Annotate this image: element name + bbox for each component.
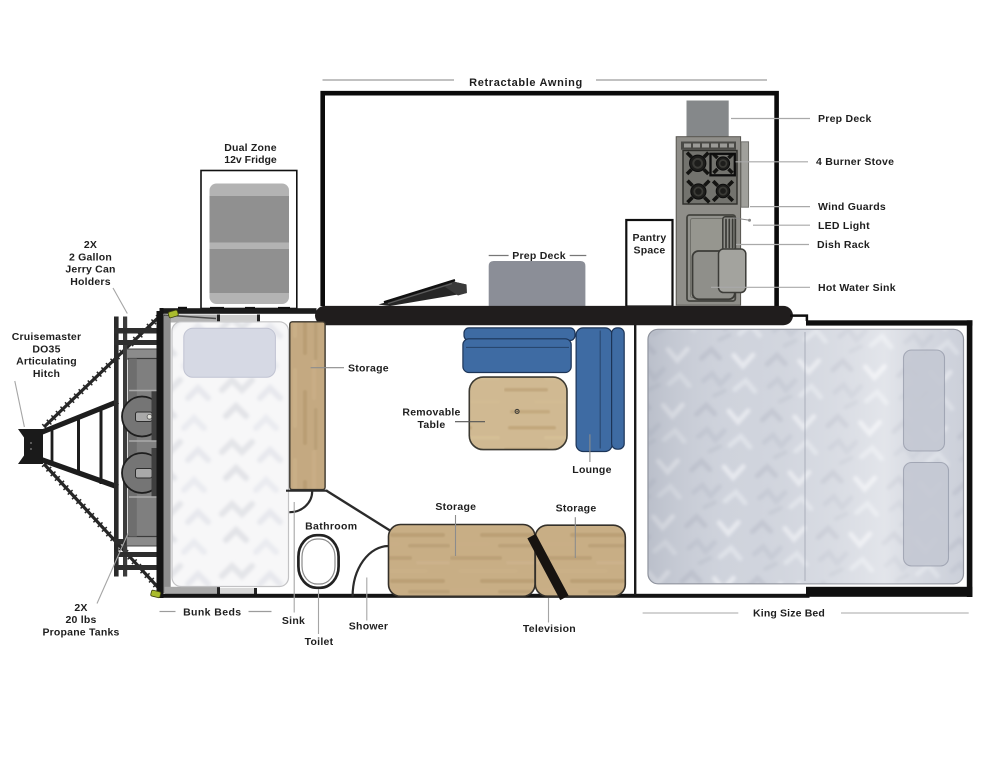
svg-text:Bathroom: Bathroom: [305, 521, 357, 533]
svg-text:Prep Deck: Prep Deck: [512, 250, 566, 262]
svg-text:Storage: Storage: [556, 503, 597, 515]
svg-text:Propane Tanks: Propane Tanks: [42, 626, 119, 638]
svg-text:Jerry Can: Jerry Can: [65, 264, 115, 276]
svg-text:Retractable Awning: Retractable Awning: [469, 77, 583, 89]
svg-text:DO35: DO35: [32, 343, 60, 355]
svg-text:Space: Space: [634, 245, 666, 257]
svg-text:Removable: Removable: [402, 407, 460, 419]
svg-text:Articulating: Articulating: [16, 356, 77, 368]
svg-text:Pantry: Pantry: [633, 232, 667, 244]
svg-text:Hot Water Sink: Hot Water Sink: [818, 282, 896, 294]
svg-text:Holders: Holders: [70, 276, 111, 288]
svg-text:2X: 2X: [84, 239, 97, 251]
svg-text:Storage: Storage: [435, 501, 476, 513]
svg-text:King Size Bed: King Size Bed: [753, 608, 825, 620]
svg-text:Sink: Sink: [282, 615, 305, 627]
svg-text:Wind Guards: Wind Guards: [818, 201, 886, 213]
svg-text:12v Fridge: 12v Fridge: [224, 154, 277, 166]
svg-text:4 Burner Stove: 4 Burner Stove: [816, 156, 894, 168]
svg-text:Prep Deck: Prep Deck: [818, 113, 872, 125]
svg-text:2X: 2X: [74, 602, 87, 614]
svg-text:2 Gallon: 2 Gallon: [69, 251, 112, 263]
svg-text:Table: Table: [418, 419, 446, 431]
svg-text:Dish Rack: Dish Rack: [817, 239, 870, 251]
svg-text:Hitch: Hitch: [33, 368, 60, 380]
svg-text:20 lbs: 20 lbs: [66, 614, 97, 626]
svg-text:Lounge: Lounge: [572, 464, 611, 476]
svg-text:Bunk Beds: Bunk Beds: [183, 607, 241, 619]
svg-text:Toilet: Toilet: [305, 636, 334, 648]
svg-text:Storage: Storage: [348, 363, 389, 375]
svg-text:Shower: Shower: [349, 621, 388, 633]
svg-text:Dual Zone: Dual Zone: [224, 142, 277, 154]
svg-text:LED Light: LED Light: [818, 220, 870, 232]
svg-text:Television: Television: [523, 623, 576, 635]
svg-text:Cruisemaster: Cruisemaster: [12, 331, 82, 343]
